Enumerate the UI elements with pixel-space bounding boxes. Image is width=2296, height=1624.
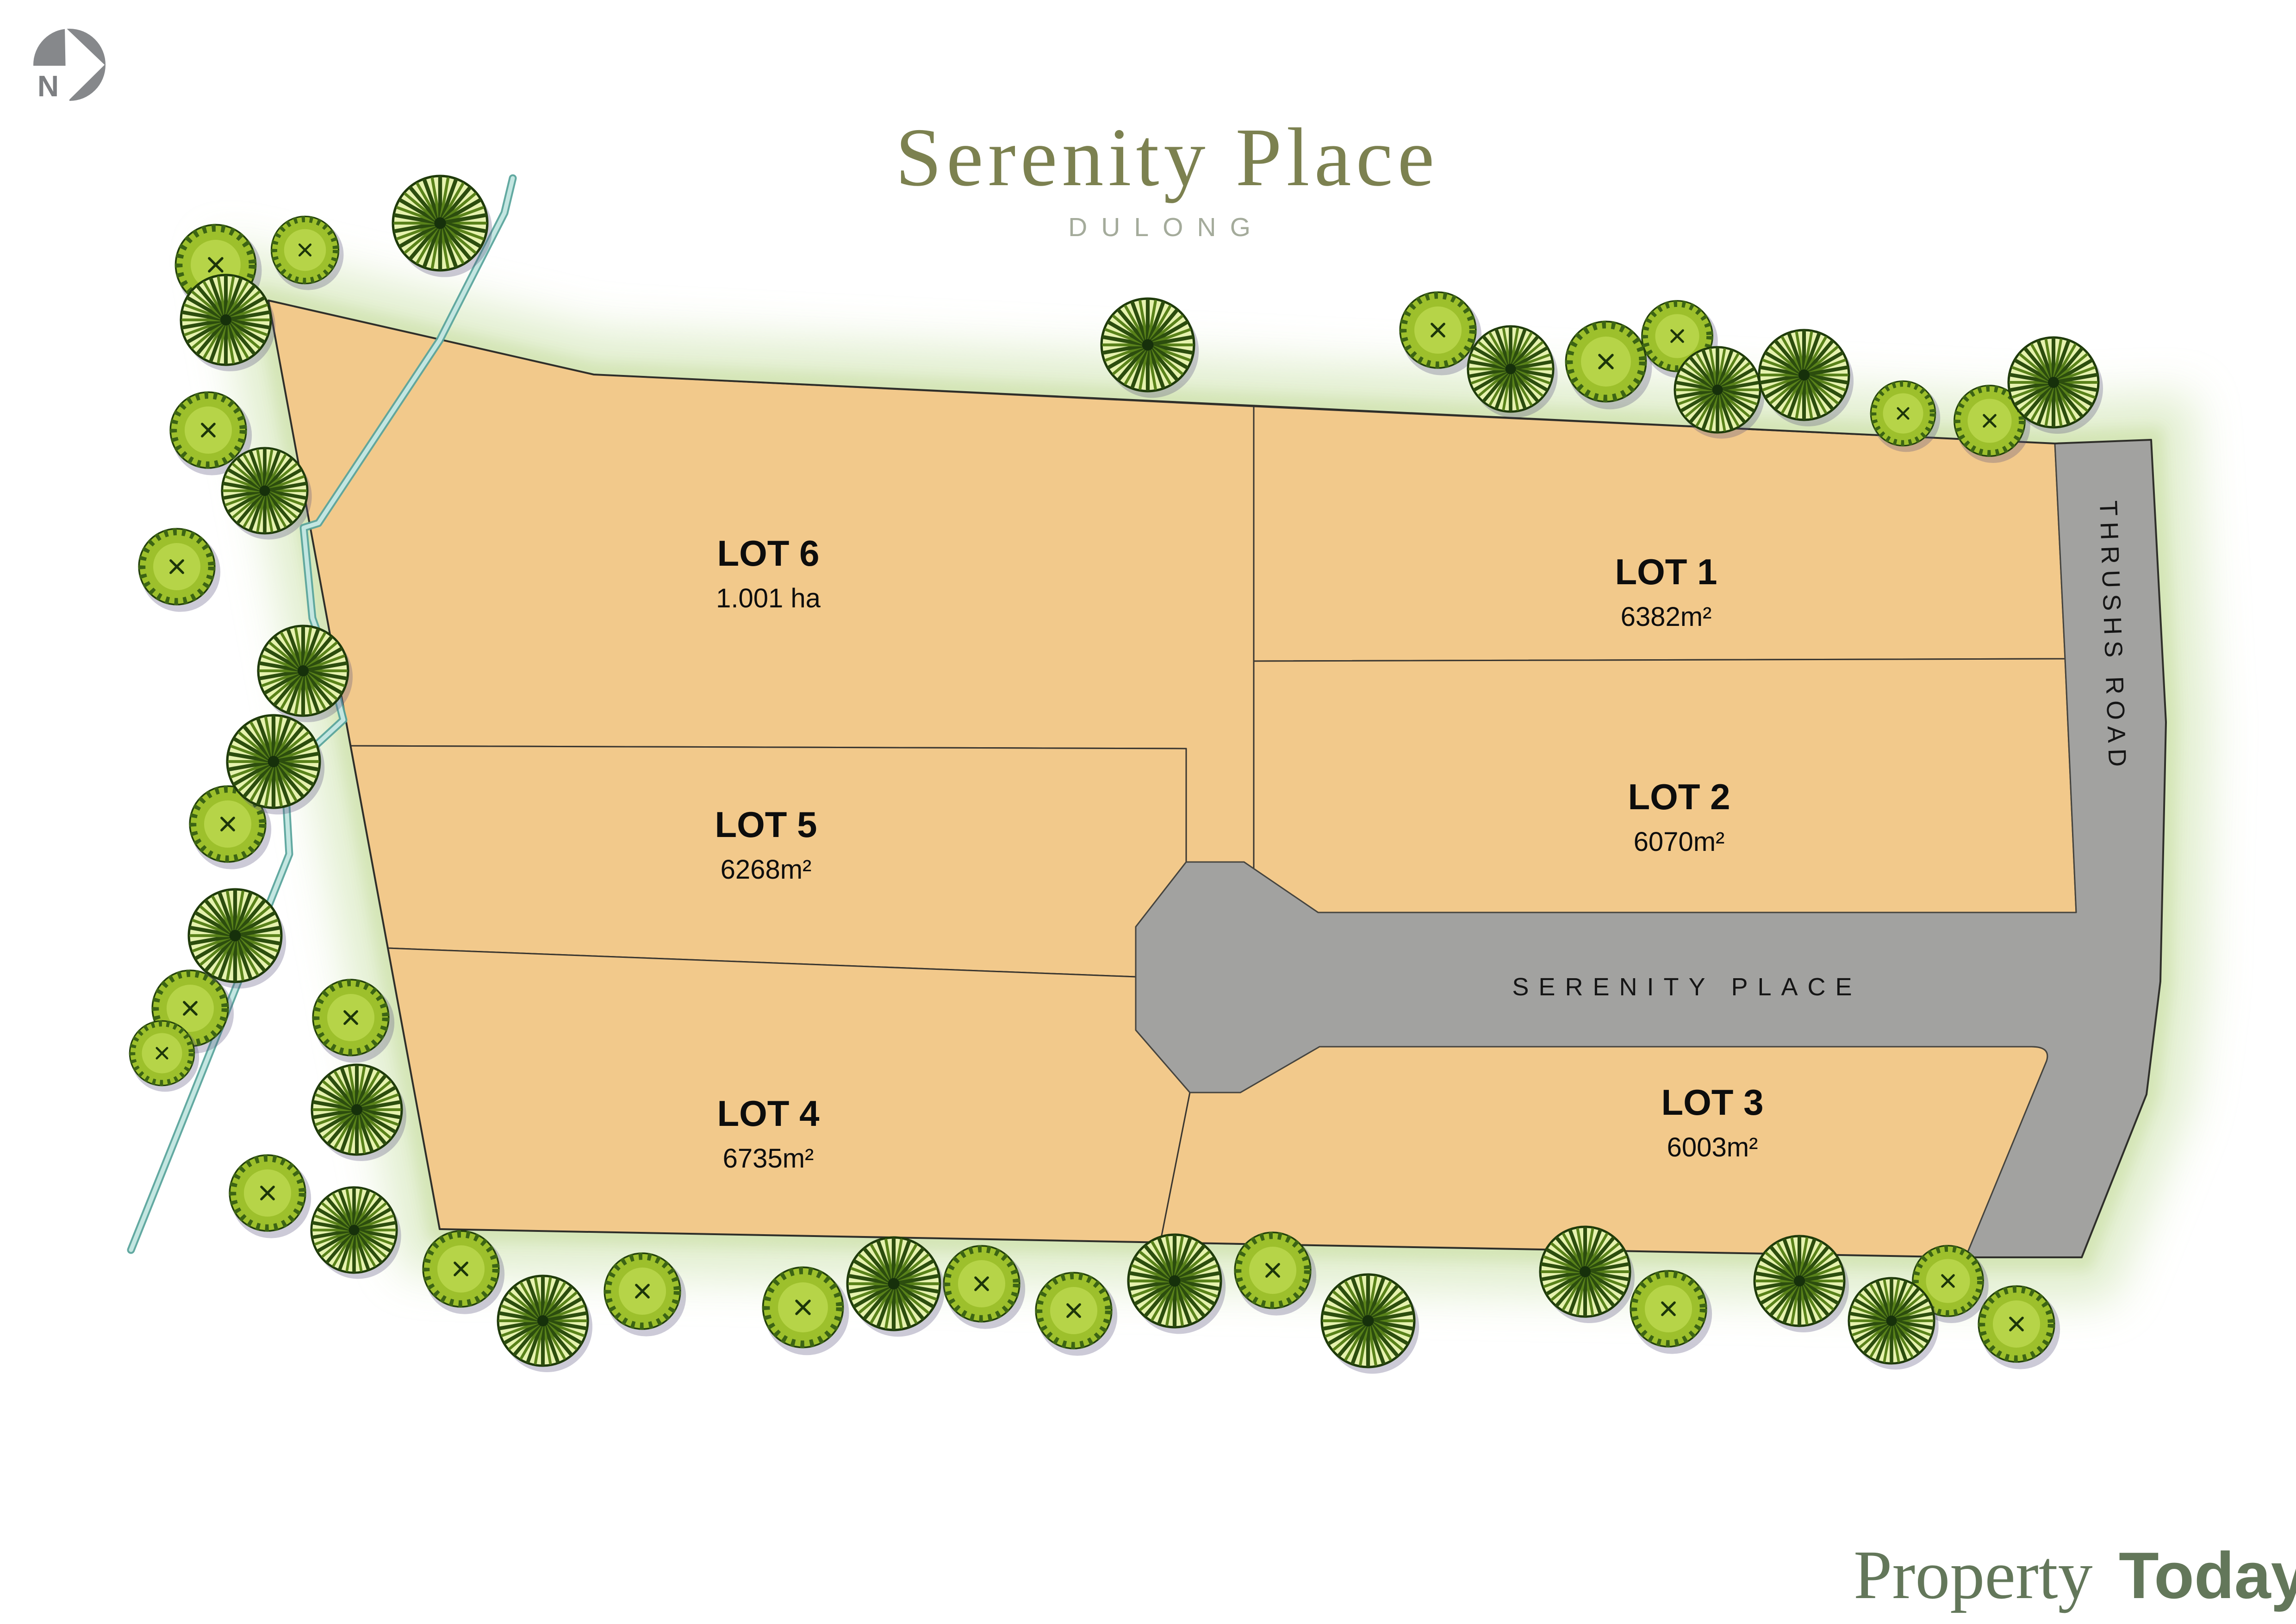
serenity-place-road-label: SERENITY PLACE xyxy=(1512,973,1861,1001)
shrub-tree-icon xyxy=(230,1155,311,1238)
plan-header: Serenity Place DULONG xyxy=(896,111,1439,242)
north-compass: N xyxy=(26,27,106,105)
lot-area-label: 6003m² xyxy=(1667,1132,1758,1162)
lot-area-label: 6070m² xyxy=(1634,827,1725,857)
lot-name-label: LOT 4 xyxy=(717,1093,819,1134)
brand-today: Today xyxy=(2119,1539,2296,1612)
lot-name-label: LOT 3 xyxy=(1661,1082,1763,1123)
lot-area-label: 6382m² xyxy=(1621,602,1712,632)
lot-parcels xyxy=(268,300,2076,1257)
page-title: Serenity Place xyxy=(896,111,1439,203)
lot-area-label: 6735m² xyxy=(723,1143,814,1174)
shrub-tree-icon xyxy=(763,1268,849,1355)
lot-3-region xyxy=(1160,1047,2047,1257)
lot-name-label: LOT 2 xyxy=(1628,776,1730,817)
palm-tree-icon xyxy=(393,176,492,277)
compass-north-label: N xyxy=(37,69,59,103)
palm-tree-icon xyxy=(311,1187,401,1279)
lot-area-label: 6268m² xyxy=(721,855,812,885)
lot-name-label: LOT 5 xyxy=(715,804,817,845)
palm-tree-icon xyxy=(498,1276,592,1372)
brand-property: Property xyxy=(1854,1537,2093,1613)
lot-area-label: 1.001 ha xyxy=(716,583,821,613)
shrub-tree-icon xyxy=(139,529,220,612)
lot-name-label: LOT 6 xyxy=(717,533,819,574)
site-plan-map: THRUSHS ROAD SERENITY PLACE LOT 16382m²L… xyxy=(0,0,2296,1624)
brand-logo: Property Today xyxy=(1854,1537,2296,1613)
page-subtitle: DULONG xyxy=(1068,212,1264,242)
lot-name-label: LOT 1 xyxy=(1615,551,1717,592)
